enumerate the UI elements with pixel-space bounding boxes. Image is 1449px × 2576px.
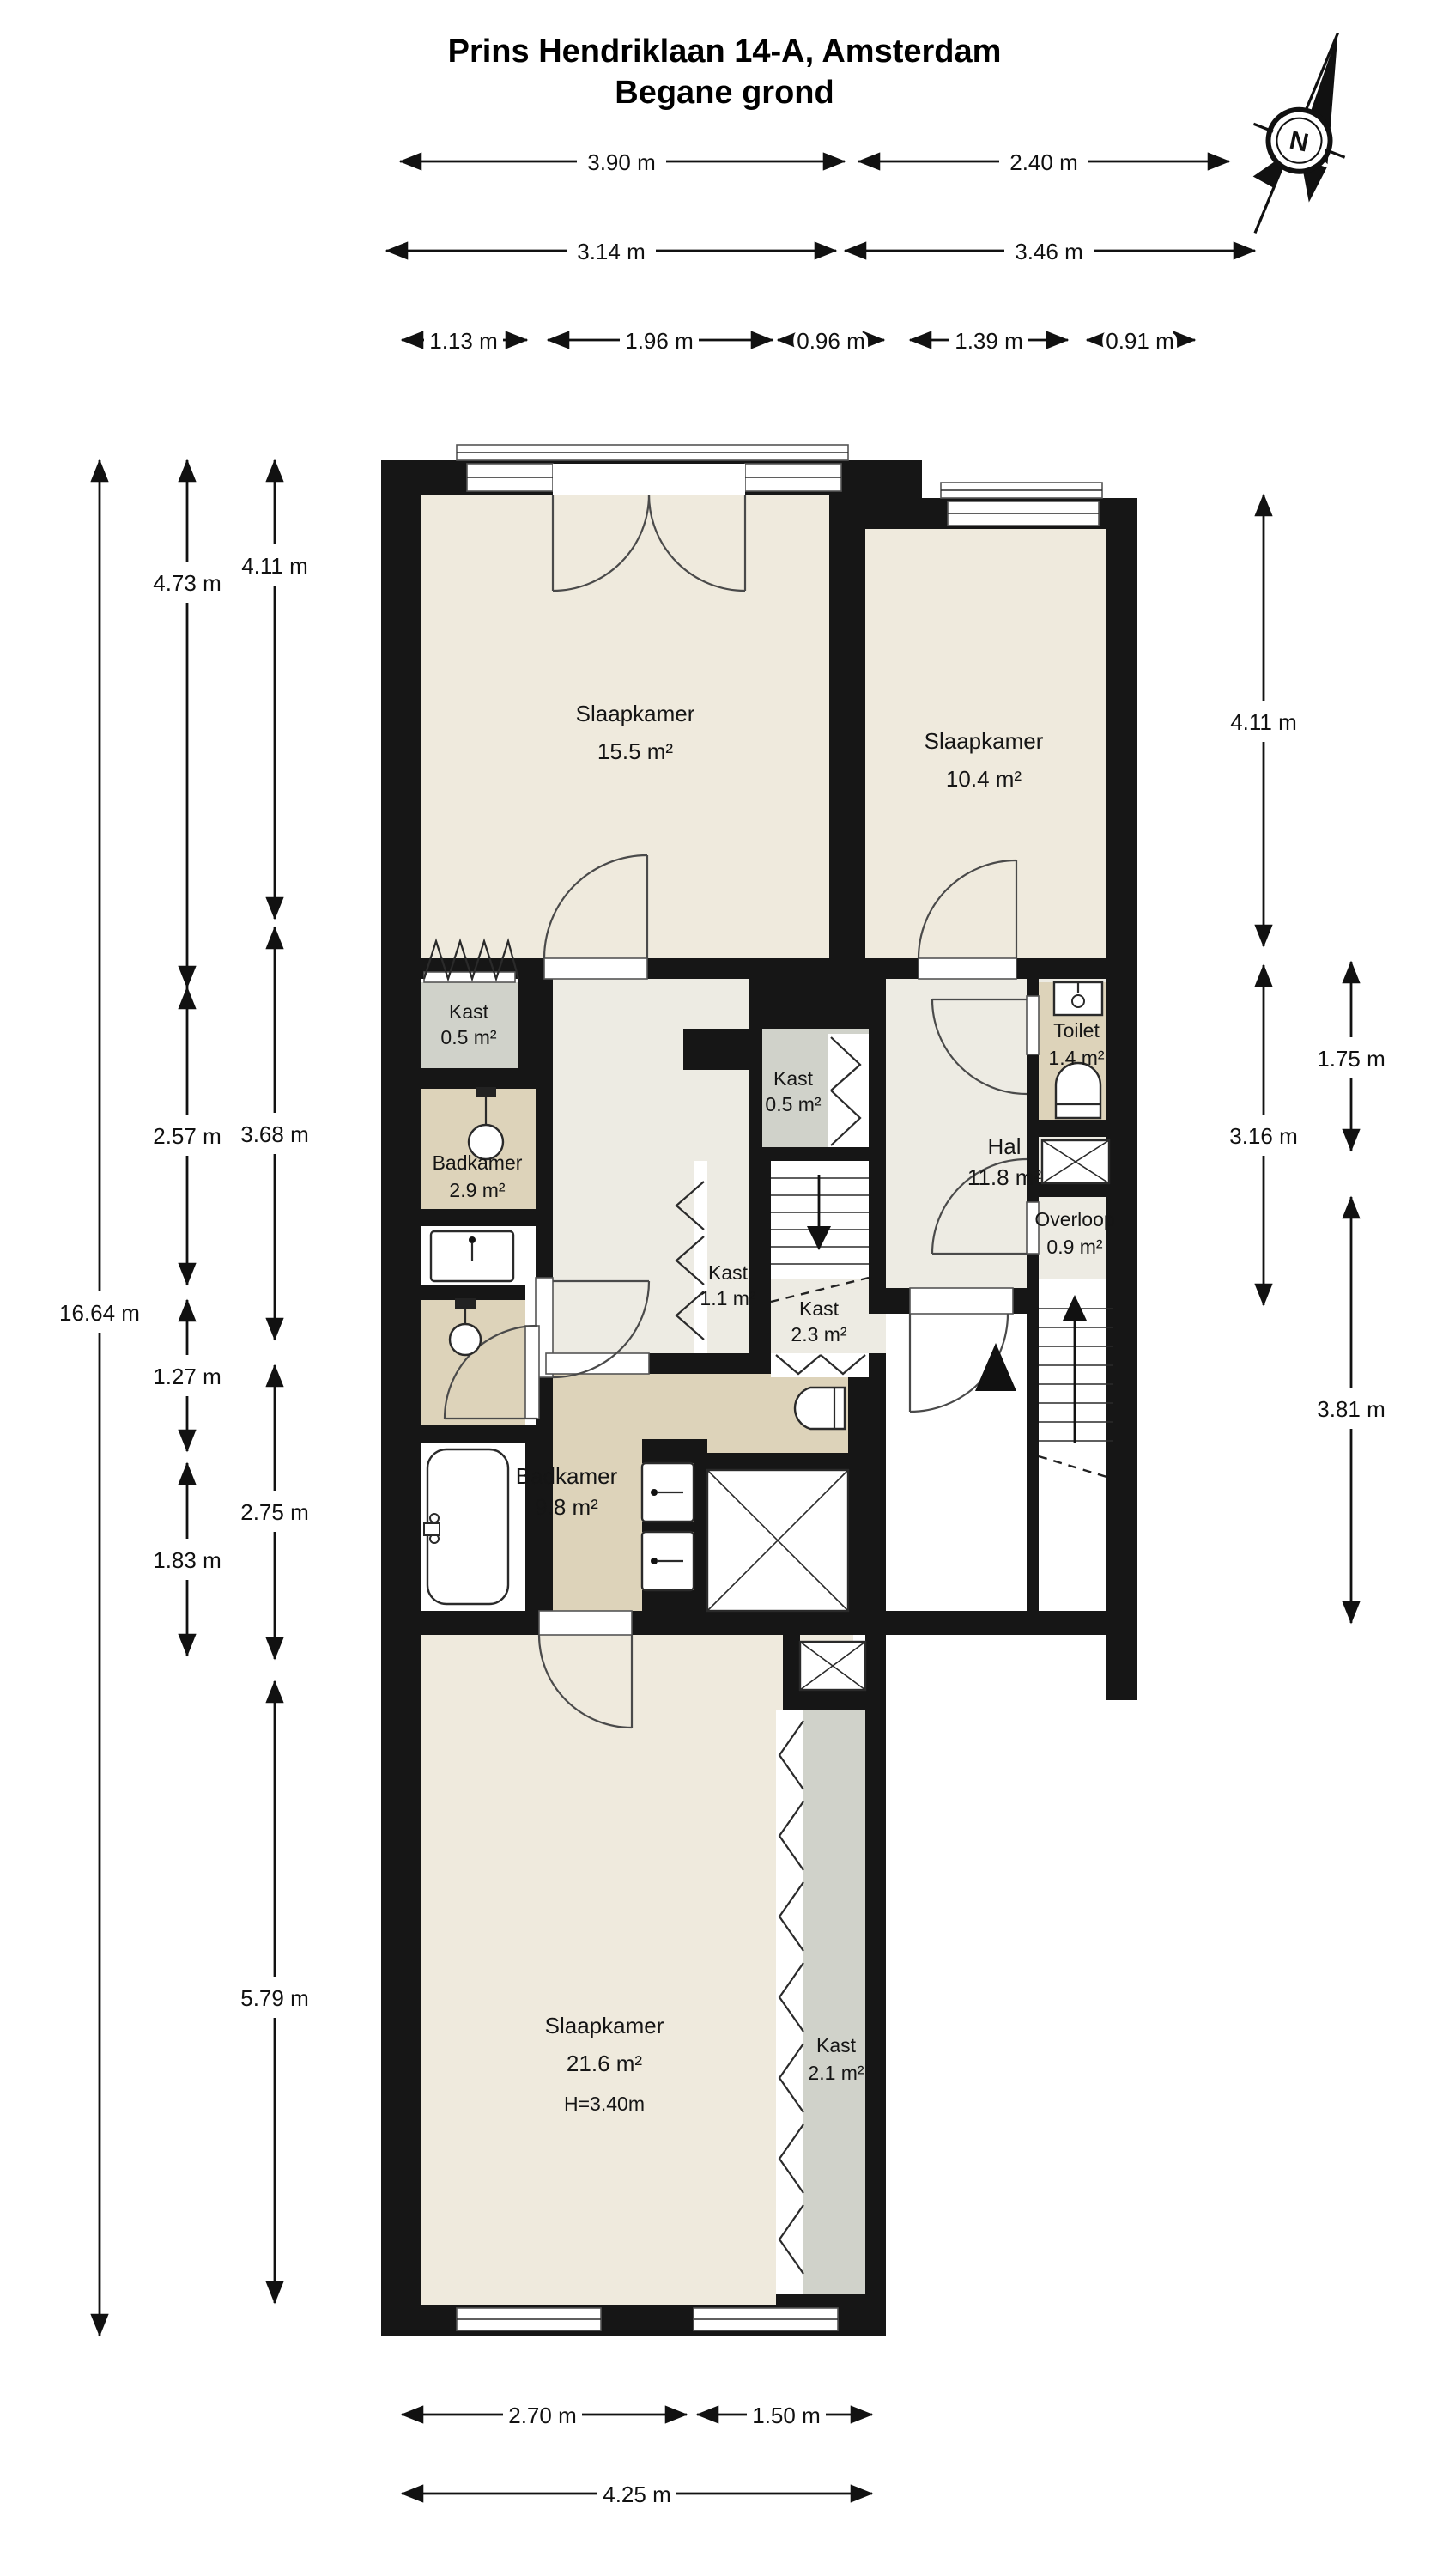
- dim-label: 16.64 m: [59, 1300, 140, 1326]
- label-kast-center: Kast: [773, 1067, 814, 1090]
- dim-label: 3.68 m: [240, 1121, 309, 1147]
- dim-label: 1.96 m: [625, 328, 694, 354]
- room-slaapkamer-15-5: [421, 495, 829, 979]
- toilet-sink: [1054, 982, 1102, 1015]
- door-threshold: [919, 958, 1016, 979]
- compass-rose: N: [1232, 20, 1370, 248]
- shower-alcove: [421, 1300, 525, 1425]
- dim-label: 1.50 m: [752, 2403, 821, 2428]
- label-overloop-area: 0.9 m²: [1046, 1236, 1103, 1258]
- page-title-line2: Begane grond: [615, 75, 834, 111]
- dim-label: 1.13 m: [429, 328, 498, 354]
- label-slaapkamer-21-6-area: 21.6 m²: [567, 2050, 642, 2076]
- dim-label: 1.83 m: [153, 1547, 221, 1573]
- dim-label: 2.75 m: [240, 1499, 309, 1525]
- bathtub: [424, 1449, 508, 1604]
- label-kast-left: Kast: [449, 1000, 489, 1023]
- label-kast-2-3: Kast: [799, 1297, 840, 1320]
- dim-label: 3.16 m: [1229, 1123, 1298, 1149]
- label-kast-1-1-area: 1.1 m²: [700, 1287, 756, 1309]
- door-threshold: [539, 1611, 632, 1635]
- dim-label: 3.81 m: [1317, 1396, 1385, 1422]
- washbasin: [431, 1231, 513, 1281]
- dim-label: 4.11 m: [1230, 709, 1297, 735]
- room-slaapkamer-10-4: [862, 529, 1106, 979]
- dim-label: 0.91 m: [1106, 328, 1174, 354]
- room-kast-2-1: [803, 1710, 867, 2294]
- entry-vestibule: [886, 1314, 1027, 1635]
- label-badkamer-2-9-area: 2.9 m²: [449, 1179, 506, 1201]
- door-threshold: [546, 1353, 649, 1374]
- toilet: [795, 1388, 845, 1429]
- label-hal-area: 11.8 m²: [967, 1164, 1042, 1190]
- label-toilet-area: 1.4 m²: [1048, 1047, 1105, 1069]
- label-kast-center-area: 0.5 m²: [765, 1093, 822, 1115]
- dim-label: 2.70 m: [508, 2403, 577, 2428]
- page-title-line1: Prins Hendriklaan 14-A, Amsterdam: [448, 33, 1002, 70]
- dim-label: 4.25 m: [603, 2482, 671, 2507]
- washbasin: [642, 1463, 694, 1522]
- label-badkamer-2-9: Badkamer: [433, 1151, 523, 1174]
- label-hal: Hal: [987, 1133, 1021, 1159]
- dim-label: 4.73 m: [153, 570, 221, 596]
- dim-label: 2.57 m: [153, 1123, 221, 1149]
- door-threshold: [525, 1326, 539, 1419]
- label-slaapkamer-10-4-area: 10.4 m²: [946, 766, 1022, 792]
- dim-label: 1.39 m: [955, 328, 1023, 354]
- dim-label: 5.79 m: [240, 1985, 309, 2011]
- dim-label: 2.40 m: [1009, 149, 1078, 175]
- dim-label: 3.90 m: [587, 149, 656, 175]
- label-slaapkamer-15-5-area: 15.5 m²: [597, 738, 673, 764]
- dim-label: 0.96 m: [797, 328, 865, 354]
- label-kast-2-3-area: 2.3 m²: [791, 1323, 847, 1346]
- door-threshold: [1027, 996, 1039, 1054]
- label-kast-1-1: Kast: [708, 1261, 749, 1284]
- dim-label: 3.14 m: [577, 239, 646, 264]
- door-threshold: [544, 958, 647, 979]
- label-slaapkamer-10-4: Slaapkamer: [925, 728, 1044, 754]
- label-slaapkamer-15-5: Slaapkamer: [576, 701, 695, 726]
- label-overloop: Overloop: [1034, 1208, 1114, 1230]
- dim-label: 4.11 m: [241, 553, 308, 579]
- label-kast-2-1-area: 2.1 m²: [808, 2062, 864, 2084]
- label-kast-left-area: 0.5 m²: [440, 1026, 497, 1048]
- toilet: [1056, 1063, 1100, 1118]
- label-badkamer-9-8-area: 9.8 m²: [535, 1494, 598, 1520]
- label-kast-2-1: Kast: [816, 2034, 857, 2057]
- door-threshold: [910, 1288, 1013, 1314]
- label-slaapkamer-21-6: Slaapkamer: [545, 2013, 664, 2038]
- floorplan-canvas: Prins Hendriklaan 14-A, Amsterdam Begane…: [0, 0, 1449, 2576]
- room-kast-left: [421, 982, 518, 1068]
- dim-label: 1.75 m: [1317, 1046, 1385, 1072]
- french-door-opening: [553, 464, 745, 495]
- label-badkamer-9-8: Badkamer: [516, 1463, 618, 1489]
- dim-label: 1.27 m: [153, 1364, 221, 1389]
- label-toilet: Toilet: [1053, 1019, 1100, 1042]
- dim-label: 3.46 m: [1015, 239, 1083, 264]
- washbasin: [642, 1532, 694, 1590]
- label-slaapkamer-21-6-height: H=3.40m: [564, 2093, 645, 2115]
- bifold-opening: [776, 1710, 803, 2294]
